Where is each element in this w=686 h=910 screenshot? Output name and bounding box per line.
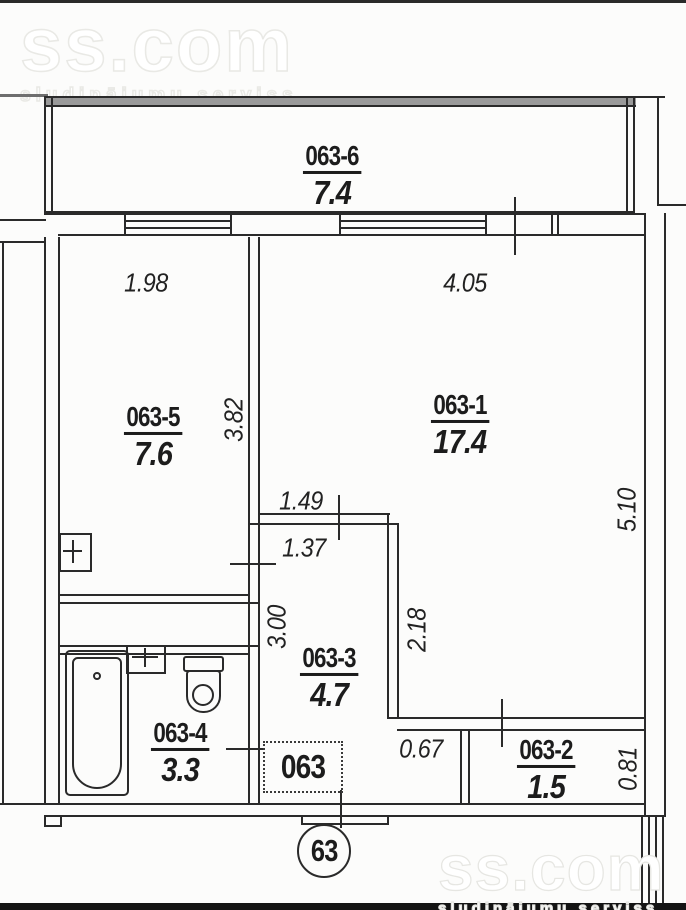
wall-segment (397, 729, 646, 731)
wall-segment (460, 729, 462, 805)
wall-segment (230, 213, 232, 236)
ss-com-logo: ss.com (438, 836, 665, 900)
wall-segment (468, 729, 470, 805)
wall-segment (339, 227, 487, 229)
room-area: 1.5 (527, 770, 565, 805)
watermark-top: ss.com sludinājumu serviss (20, 8, 298, 105)
room-label-063-1: 063-1 17.4 (424, 390, 497, 460)
wall-segment (338, 495, 340, 540)
dim-label: 5.10 (612, 488, 643, 532)
ss-com-logo: ss.com (20, 8, 298, 84)
sink-box (126, 645, 166, 674)
ss-com-tagline: sludinājumu serviss (438, 901, 665, 910)
apartment-number-box: 063 (263, 741, 343, 793)
wall-segment (657, 96, 659, 206)
wall-segment (339, 220, 487, 222)
dim-label: 1.98 (124, 268, 168, 299)
wall-segment (44, 213, 646, 215)
dim-label: 0.81 (613, 747, 644, 791)
wall-segment (44, 815, 666, 817)
wall-segment (58, 594, 250, 596)
room-number: 063-4 (151, 718, 209, 751)
wall-segment (230, 563, 276, 565)
toilet-seat (192, 684, 214, 706)
wall-segment (0, 0, 686, 3)
room-number: 063-3 (300, 643, 358, 676)
wall-segment (248, 523, 399, 525)
wall-segment (124, 213, 126, 236)
wall-segment (633, 96, 665, 98)
wall-segment (124, 227, 232, 229)
room-area: 17.4 (433, 425, 486, 460)
room-number: 063-5 (124, 402, 182, 435)
room-label-063-6: 063-6 7.4 (296, 141, 369, 211)
wall-segment (0, 94, 48, 97)
wall-segment (58, 602, 260, 604)
room-label-063-4: 063-4 3.3 (144, 718, 217, 788)
wall-segment (664, 213, 666, 817)
apartment-number: 063 (281, 748, 325, 786)
wall-segment (626, 96, 628, 213)
bathtub-drain (93, 672, 101, 680)
plot-number: 63 (311, 833, 338, 869)
wall-segment (397, 523, 399, 719)
wall-segment (339, 213, 341, 236)
wall-segment (485, 213, 487, 236)
wall-segment (44, 105, 636, 107)
wall-segment (44, 237, 46, 805)
wall-segment (514, 197, 516, 255)
wall-segment (226, 748, 264, 750)
wall-segment (0, 803, 46, 805)
wall-segment (387, 717, 646, 719)
wall-segment (44, 98, 636, 105)
wall-segment (124, 220, 232, 222)
wall-segment (0, 241, 46, 243)
dim-label: 0.67 (399, 734, 443, 765)
room-area: 7.6 (134, 437, 172, 472)
wall-segment (557, 213, 559, 235)
room-number: 063-1 (431, 390, 489, 423)
room-area: 7.4 (313, 176, 351, 211)
wall-segment (44, 96, 46, 213)
wall-segment (387, 513, 389, 719)
dim-label: 3.00 (262, 605, 293, 649)
room-number: 063-2 (517, 735, 575, 768)
wall-segment (340, 790, 342, 828)
wall-segment (44, 96, 636, 98)
room-area: 4.7 (310, 678, 348, 713)
dim-label: 1.37 (282, 533, 326, 564)
wall-segment (633, 96, 635, 213)
wall-segment (551, 213, 553, 235)
cross-line (144, 648, 146, 667)
room-number: 063-6 (303, 141, 361, 174)
wall-segment (501, 699, 503, 747)
floor-plan: ss.com sludinājumu serviss 063-6 7.4 063… (0, 0, 686, 910)
cross-line (72, 540, 74, 563)
dim-label: 3.82 (219, 398, 250, 442)
vent-shaft-box (59, 533, 92, 572)
wall-segment (58, 237, 60, 805)
dim-label: 2.18 (402, 608, 433, 652)
wall-segment (0, 219, 46, 221)
dim-label: 1.49 (279, 486, 323, 517)
dim-label: 4.05 (443, 268, 487, 299)
watermark-bottom: ss.com sludinājumu serviss (438, 836, 665, 910)
wall-segment (2, 241, 4, 805)
wall-segment (258, 513, 390, 515)
room-area: 3.3 (161, 753, 199, 788)
wall-segment (51, 96, 53, 213)
wall-segment (657, 204, 686, 206)
plot-number-circle: 63 (297, 824, 351, 878)
wall-segment (644, 213, 646, 817)
wall-segment (258, 237, 260, 805)
wall-segment (44, 825, 62, 827)
wall-segment (248, 237, 250, 805)
room-label-063-2: 063-2 1.5 (510, 735, 583, 805)
room-label-063-5: 063-5 7.6 (117, 402, 190, 472)
room-label-063-3: 063-3 4.7 (293, 643, 366, 713)
